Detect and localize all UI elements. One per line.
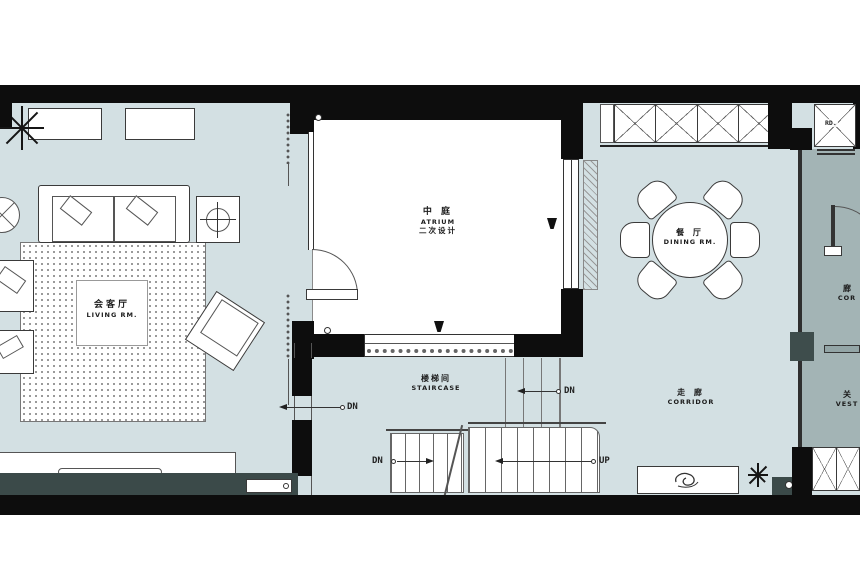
pier-bottom-right [792, 447, 812, 495]
atrium-pier-tr [561, 103, 583, 159]
floor-plan: 会客厅 LIVING RM. [0, 0, 860, 573]
up-arrow-line [502, 461, 592, 462]
closet-xpanel-3 [697, 105, 738, 142]
vestibule-wall [798, 149, 802, 447]
corridor-cut-label: 廊 COR [832, 284, 860, 302]
dn1-arrow-line [286, 407, 342, 408]
corridor-label-zh: 走 廊 [653, 388, 729, 398]
wall-bottom [0, 495, 860, 515]
dn3-arrow-head [426, 458, 434, 464]
corridor-cut-en: COR [832, 294, 860, 302]
dining-label-en: DINING RM. [650, 238, 730, 246]
closet-br-xpanel-1 [813, 448, 836, 490]
stair-flight-upper [505, 358, 561, 428]
rd-box-sill-2 [817, 153, 855, 155]
rd-box-sill-1 [817, 149, 855, 151]
rear-door-knob [283, 483, 289, 489]
up-arrow-head [495, 458, 503, 464]
up-arrow-dot [591, 459, 596, 464]
staircase-label-en: STAIRCASE [398, 384, 474, 392]
column-marker-1 [315, 114, 322, 121]
dining-label-zh: 餐 厅 [650, 228, 730, 238]
closet-end-panel [600, 104, 614, 143]
corridor-label: 走 廊 CORRIDOR [653, 388, 729, 406]
closet-row [614, 104, 780, 143]
dn2-label: DN [564, 386, 575, 396]
closet-xpanel-1 [615, 105, 655, 142]
closet-xpanel-2 [655, 105, 696, 142]
lamp-ring [206, 208, 230, 232]
console-table-right [824, 345, 860, 353]
lamp-cross-v [217, 202, 218, 238]
decor-swirl-icon [670, 470, 704, 490]
window-bay-scallop [367, 349, 513, 353]
dn3-label: DN [372, 456, 383, 466]
stairhall-wall-upper [292, 358, 312, 396]
dn1-arrow-dot [340, 405, 345, 410]
dn3-arrow-dot [391, 459, 396, 464]
vestibule-cut-zh: 关 [832, 390, 860, 400]
atrium-pier-br [561, 289, 583, 357]
small-plant-icon [748, 463, 768, 487]
living-room-label: 会客厅 LIVING RM. [72, 300, 152, 319]
dn2-arrow-dot [556, 389, 561, 394]
stair-railing-left [386, 429, 470, 431]
curtain-bottom [285, 293, 291, 359]
vestibule-door-hinge [824, 246, 842, 256]
atrium-door-leaf [306, 289, 358, 300]
window-bay-line [365, 343, 515, 344]
living-room-label-zh: 会客厅 [72, 300, 152, 311]
curtain-top-track [288, 164, 289, 186]
staircase-label: 楼梯间 STAIRCASE [398, 374, 474, 392]
dining-chair-3 [620, 222, 650, 258]
pier-rd-left [790, 128, 812, 150]
atrium-pier-tl [290, 100, 314, 134]
window-glazing-line [571, 160, 572, 288]
living-room-label-en: LIVING RM. [72, 311, 152, 319]
dn2-arrow-head [517, 388, 525, 394]
rear-door [246, 479, 292, 493]
dn3-arrow-line [397, 461, 427, 462]
atrium-label-zh: 中 庭 [398, 207, 478, 218]
curtain-bottom-track [288, 359, 289, 405]
atrium-window-bay [364, 334, 516, 357]
wall-hatch-right [583, 160, 598, 290]
closet-bottom-right [812, 447, 860, 491]
corridor-cut-zh: 廊 [832, 284, 860, 294]
atrium-label-note: 二次设计 [398, 226, 478, 235]
stairhall-wall-lower [292, 420, 312, 476]
closet-row-baseline [600, 145, 792, 147]
lamp-cross-h [200, 219, 236, 220]
column-marker-2 [324, 327, 331, 334]
atrium-window-right [563, 159, 579, 289]
dn1-arrow-head [279, 404, 287, 410]
column-block [790, 332, 814, 361]
vestibule-cut-en: VEST [832, 400, 860, 408]
closet-br-xpanel-2 [836, 448, 860, 490]
stair-flight-up [468, 427, 600, 493]
dining-room-label: 餐 厅 DINING RM. [650, 228, 730, 246]
console-cabinet [637, 466, 739, 494]
pier-top-left [0, 103, 12, 127]
vestibule-cut-label: 关 VEST [832, 390, 860, 408]
vestibule-door-leaf [831, 205, 835, 252]
corridor-label-en: CORRIDOR [653, 398, 729, 406]
rd-label: RD. [824, 119, 838, 127]
up-label: UP [599, 456, 610, 466]
atrium-label: 中 庭 ATRIUM 二次设计 [398, 207, 478, 236]
staircase-label-zh: 楼梯间 [398, 374, 474, 384]
dn1-label: DN [347, 402, 358, 412]
dining-chair-4 [730, 222, 760, 258]
stair-railing-right [468, 422, 606, 424]
wall-top [0, 85, 860, 103]
window-box-2 [125, 108, 195, 140]
pier-closet-right [768, 103, 792, 149]
dn2-arrow-line [524, 391, 558, 392]
atrium-wall-left [308, 132, 314, 250]
